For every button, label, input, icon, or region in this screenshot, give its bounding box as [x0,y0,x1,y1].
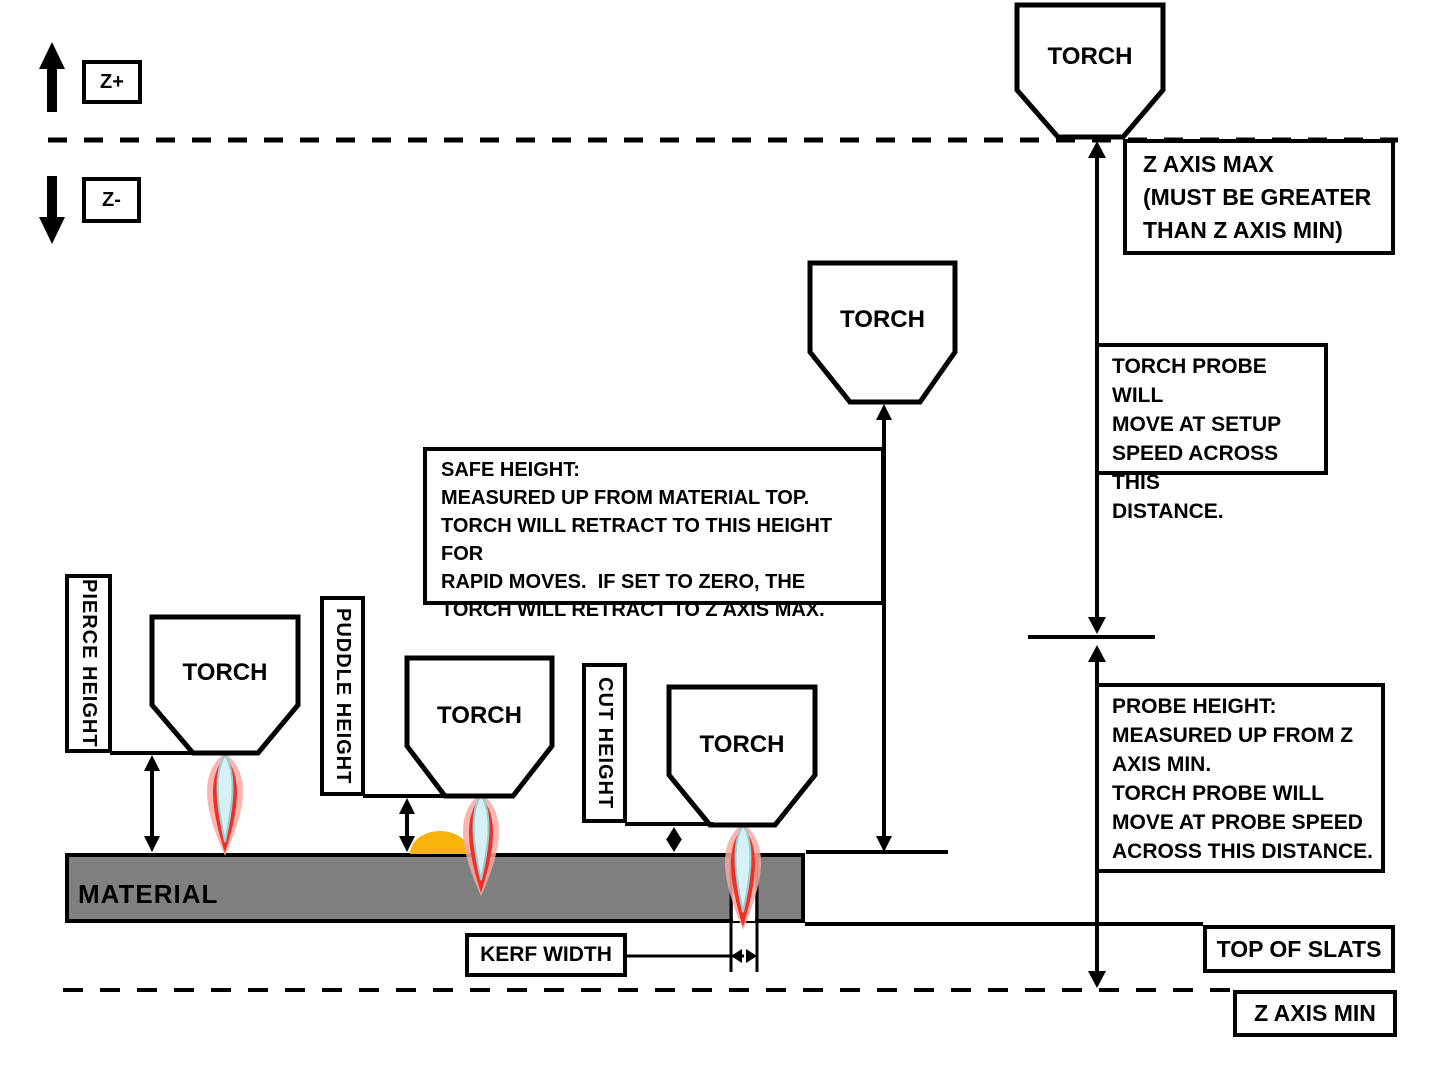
safe-height-callout: SAFE HEIGHT: MEASURED UP FROM MATERIAL T… [423,447,885,605]
torch-label-puddle: TORCH [407,702,552,730]
z-minus-label-box: Z- [82,177,141,223]
cut-height-arrow [666,827,682,852]
top-of-slats-label-box: TOP OF SLATS [1203,925,1395,973]
pierce-height-label-box: PIERCE HEIGHT [65,574,112,753]
torch-label-cut: TORCH [669,731,815,759]
z-axis-max-callout: Z AXIS MAX (MUST BE GREATER THAN Z AXIS … [1123,139,1395,255]
z-axis-min-label-box: Z AXIS MIN [1233,990,1397,1037]
pierce-flame-icon [207,753,243,856]
z-axis-min-label: Z AXIS MIN [1254,1000,1376,1027]
pierce-height-label: PIERCE HEIGHT [77,579,100,748]
torch-shape-top [1017,5,1163,137]
torch-label-safe: TORCH [810,306,955,334]
kerf-width-label: KERF WIDTH [480,943,612,967]
z-plus-arrow-icon [39,42,65,112]
z-plus-label-box: Z+ [82,60,142,104]
probe-height-callout: PROBE HEIGHT: MEASURED UP FROM Z AXIS MI… [1095,683,1385,873]
torch-height-diagram: Z+ Z- Z AXIS MAX (MUST BE GREATER THAN Z… [0,0,1436,1078]
torch-label-top: TORCH [1017,43,1163,71]
material-label: MATERIAL [78,879,218,910]
torch-probe-callout: TORCH PROBE WILL MOVE AT SETUP SPEED ACR… [1095,343,1328,475]
puddle-icon [410,831,470,854]
kerf-width-pointer [627,949,757,963]
puddle-height-arrow [399,798,415,852]
puddle-height-label-box: PUDDLE HEIGHT [320,596,365,796]
z-plus-label: Z+ [100,71,124,94]
z-minus-arrow-icon [39,176,65,244]
puddle-height-label: PUDDLE HEIGHT [331,608,354,784]
kerf-width-label-box: KERF WIDTH [465,933,627,977]
top-of-slats-label: TOP OF SLATS [1217,936,1382,963]
pierce-height-arrow [144,755,160,852]
z-minus-label: Z- [102,189,121,212]
cut-height-label-box: CUT HEIGHT [582,663,627,823]
cut-height-label: CUT HEIGHT [593,677,616,809]
torch-label-pierce: TORCH [152,659,298,687]
